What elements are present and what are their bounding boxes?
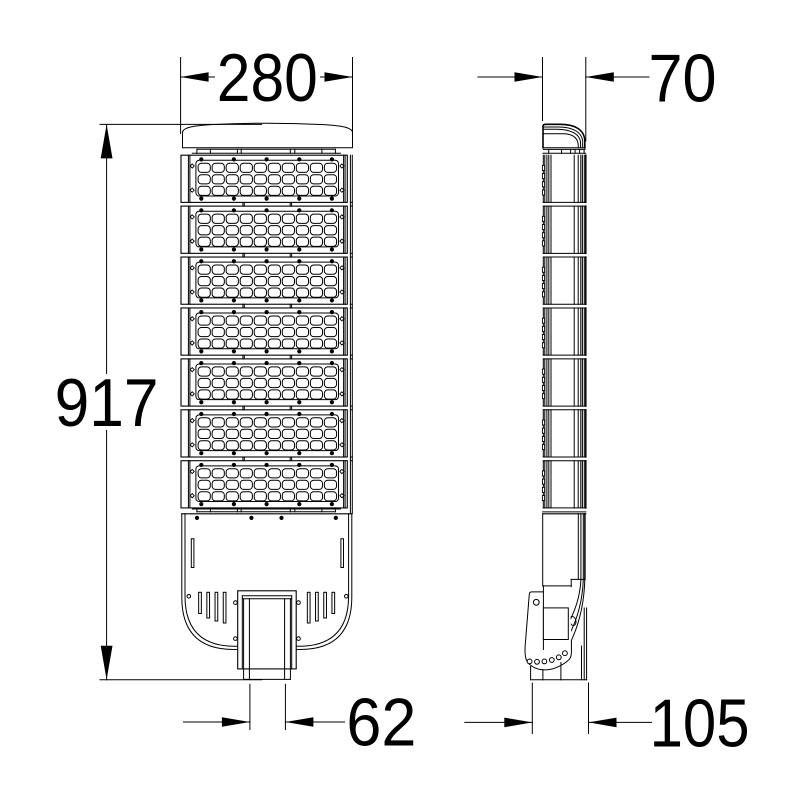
svg-text:917: 917 bbox=[55, 365, 159, 441]
svg-text:280: 280 bbox=[217, 40, 318, 116]
svg-text:105: 105 bbox=[650, 685, 750, 761]
svg-text:62: 62 bbox=[346, 684, 416, 760]
svg-text:70: 70 bbox=[649, 41, 717, 117]
